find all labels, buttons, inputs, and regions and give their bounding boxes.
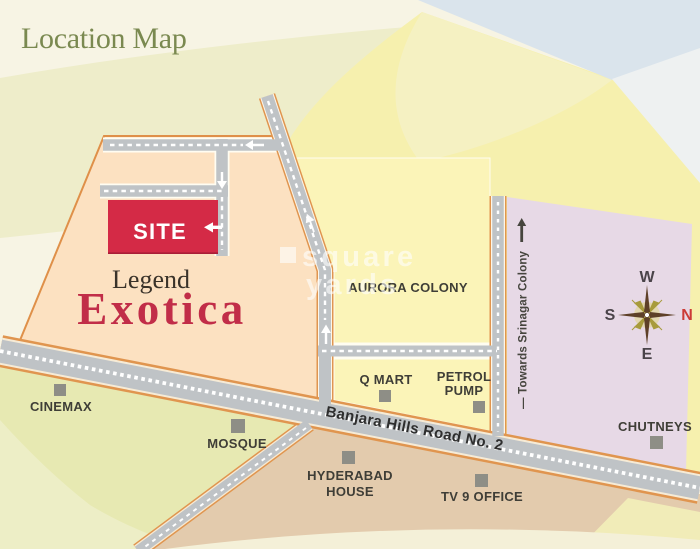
svg-text:MOSQUE: MOSQUE <box>207 436 267 451</box>
svg-text:Q MART: Q MART <box>359 372 412 387</box>
svg-text:HYDERABAD: HYDERABAD <box>307 468 393 483</box>
svg-text:N: N <box>681 307 693 324</box>
svg-text:Location Map: Location Map <box>21 22 187 55</box>
svg-text:HOUSE: HOUSE <box>326 484 374 499</box>
svg-text:CINEMAX: CINEMAX <box>30 399 92 414</box>
svg-text:CHUTNEYS: CHUTNEYS <box>618 419 692 434</box>
svg-text:Exotica: Exotica <box>77 284 246 334</box>
svg-text:S: S <box>605 307 616 324</box>
svg-text:— Towards Srinagar Colony: — Towards Srinagar Colony <box>518 250 530 409</box>
svg-text:E: E <box>642 346 653 363</box>
svg-text:PETROL: PETROL <box>437 369 492 384</box>
svg-text:TV 9 OFFICE: TV 9 OFFICE <box>441 489 523 504</box>
svg-text:SITE: SITE <box>133 219 187 244</box>
svg-text:PUMP: PUMP <box>445 383 484 398</box>
svg-text:W: W <box>639 269 655 286</box>
svg-text:yards: yards <box>306 269 399 301</box>
